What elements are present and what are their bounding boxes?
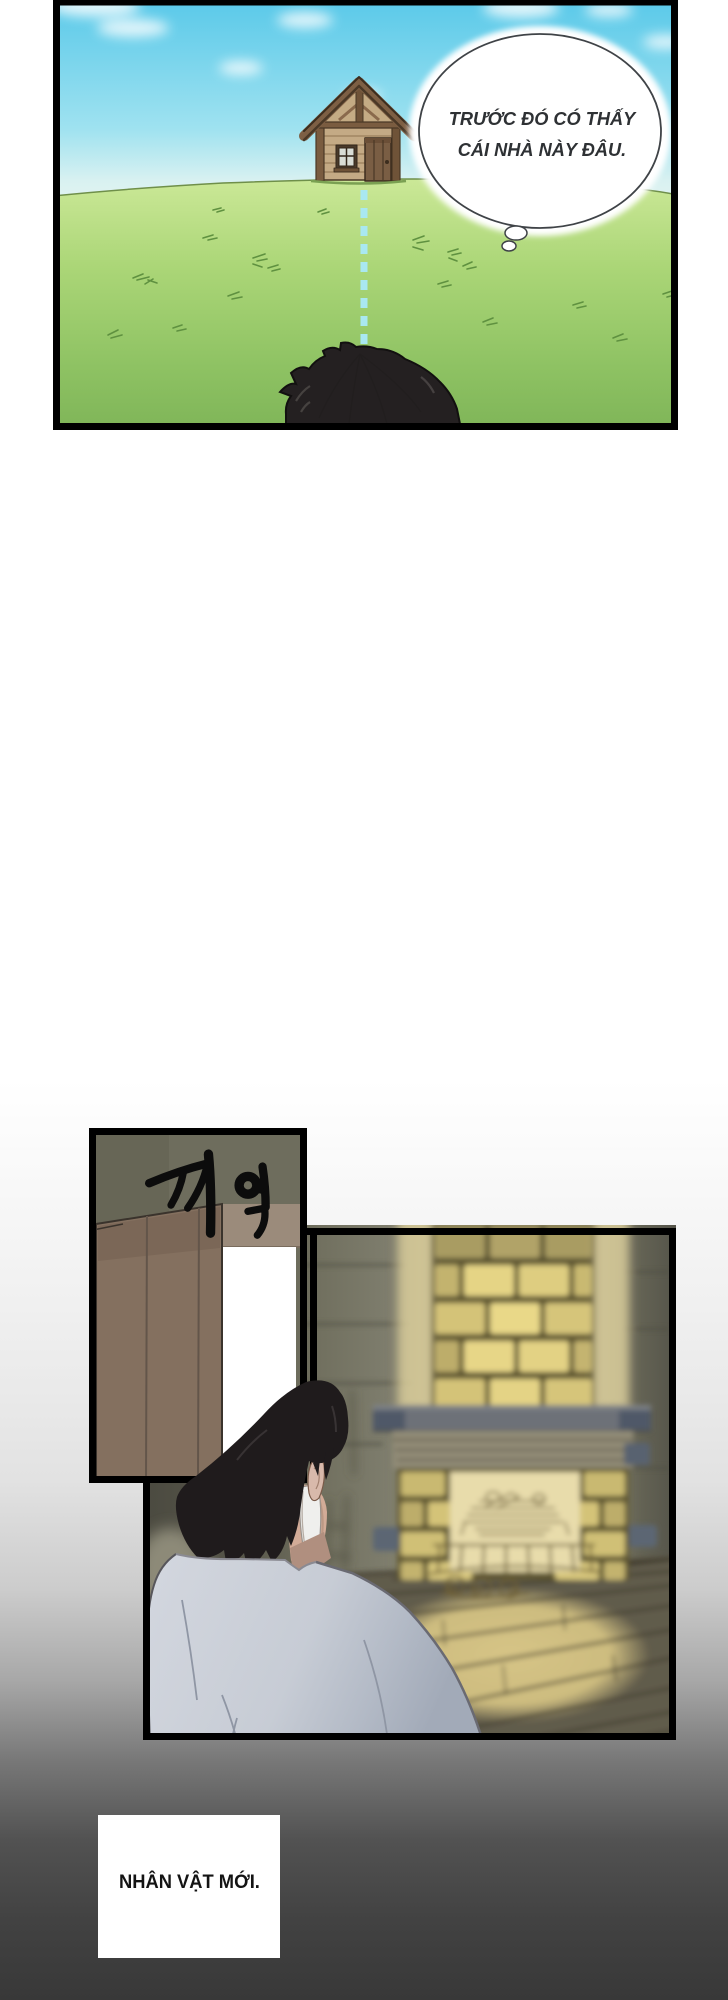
svg-text:TRƯỚC ĐÓ CÓ THẤY: TRƯỚC ĐÓ CÓ THẤY (449, 108, 637, 129)
svg-text:CÁI NHÀ NÀY ĐÂU.: CÁI NHÀ NÀY ĐÂU. (458, 139, 626, 160)
